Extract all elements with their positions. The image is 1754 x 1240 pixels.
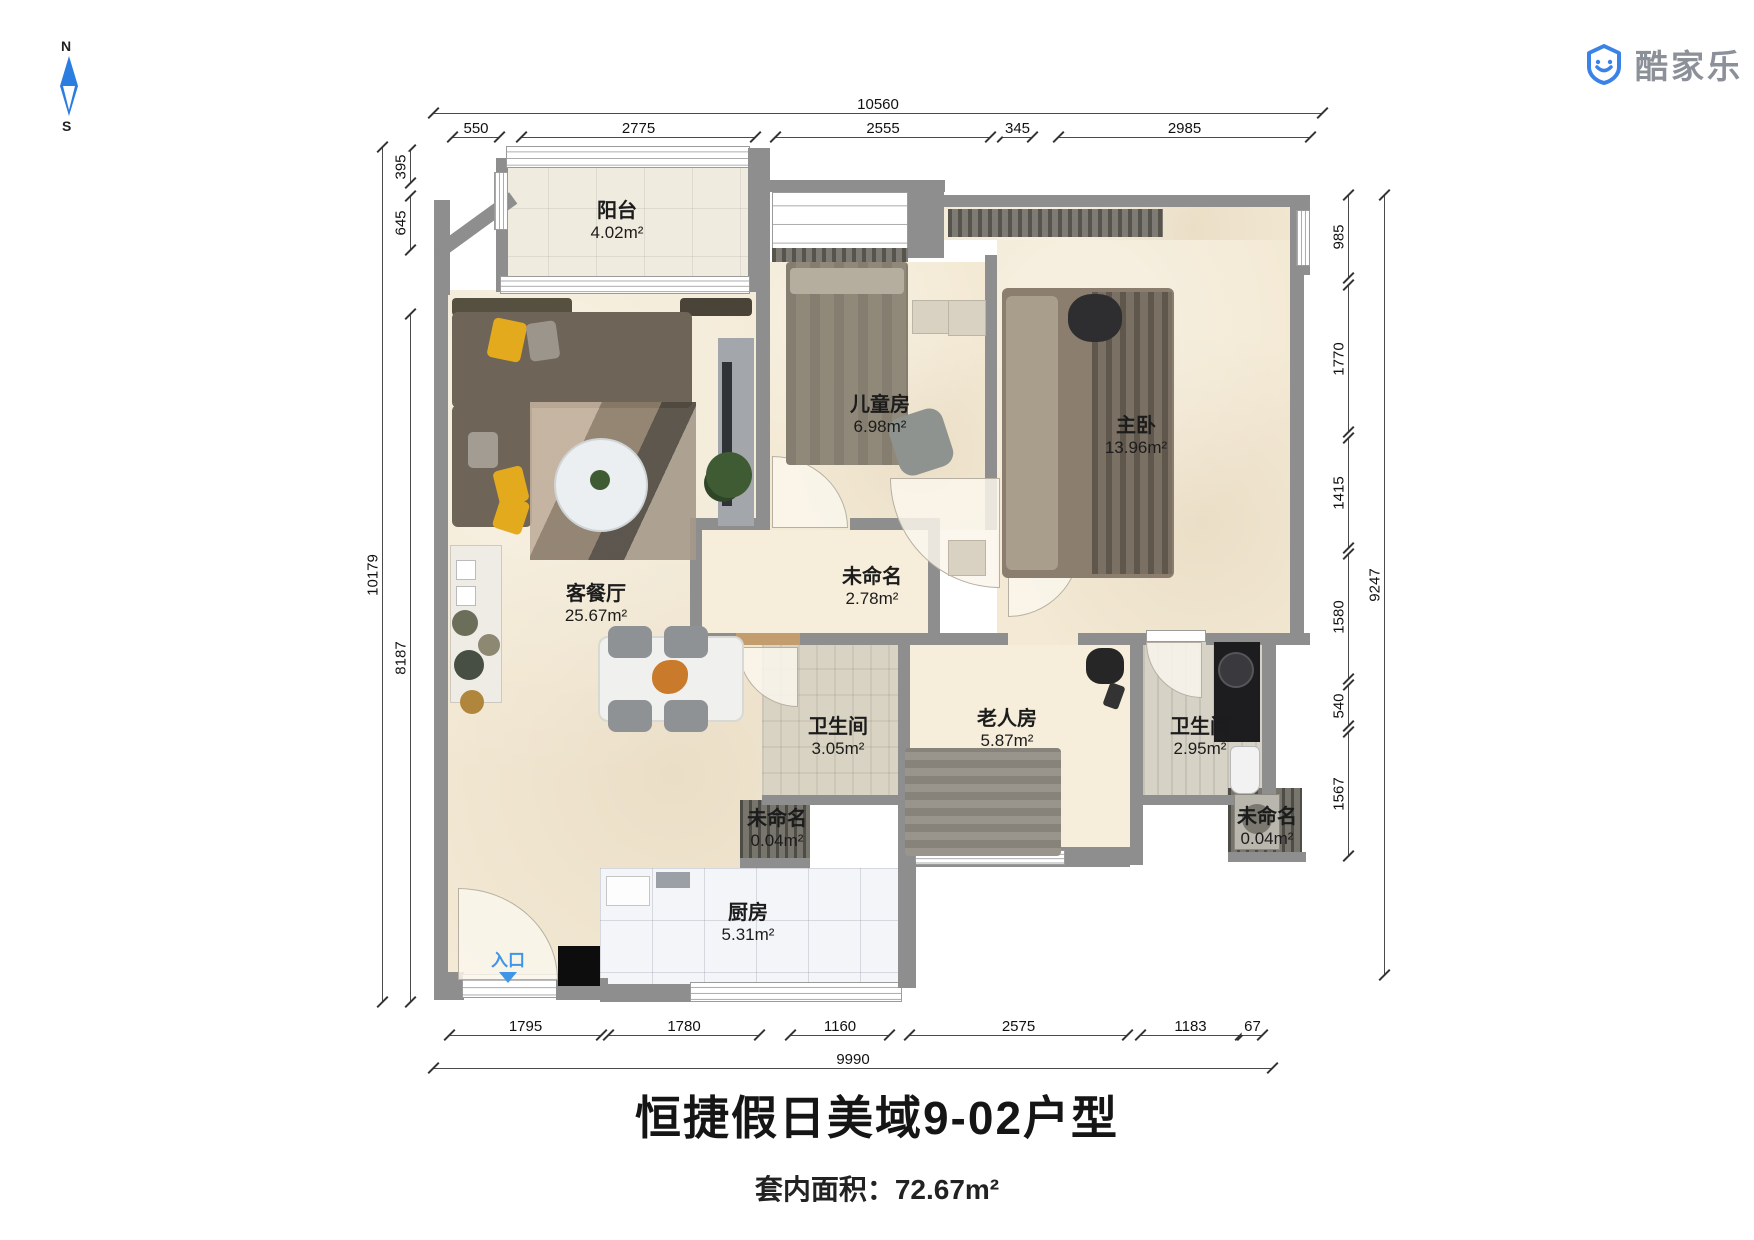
dim-bottom-seg-2575: 2575: [910, 1015, 1127, 1036]
sofa-chaise: [452, 312, 692, 408]
wall-left: [434, 290, 448, 982]
kids-curtain-band: [772, 248, 908, 262]
dim-bottom-seg-1780: 1780: [609, 1015, 759, 1036]
decor-pot-3: [454, 650, 484, 680]
plan-title: 恒捷假日美域9-02户型: [0, 1082, 1754, 1148]
floorplan-page: N S 酷家乐: [0, 0, 1754, 1240]
dim-top-seg-345: 345: [1003, 117, 1032, 138]
room-label-hallway-unnamed: 未命名 2.78m²: [842, 566, 902, 609]
dim-bottom-seg-67: 67: [1243, 1015, 1262, 1036]
decor-pot-4: [460, 690, 484, 714]
dim-bottom-total: 9990: [434, 1048, 1272, 1069]
room-label-bathroom2: 卫生间 2.95m²: [1170, 716, 1230, 759]
bathroom1-threshold: [736, 633, 800, 645]
dim-right-seg-540: 540: [1348, 685, 1369, 726]
kujiale-logo-text: 酷家乐: [1635, 40, 1743, 88]
room-label-kitchen: 厨房 5.31m²: [722, 902, 775, 945]
dining-chair-2: [664, 626, 708, 658]
sideboard-dish-1: [456, 560, 476, 580]
wall-bath1-bottom: [762, 795, 910, 805]
kids-bed-pillow: [790, 268, 904, 294]
decor-pot-1: [452, 610, 478, 636]
dim-left-seg-645: 645: [410, 196, 431, 250]
master-nightstand-2: [948, 540, 986, 576]
wall-master-top: [940, 195, 1310, 207]
master-right-window: [1296, 210, 1310, 266]
coffee-table-plant: [590, 470, 610, 490]
dim-top-seg-2775: 2775: [522, 117, 755, 138]
room-label-balcony: 阳台 4.02m²: [591, 200, 644, 243]
room-label-master-bedroom: 主卧 13.96m²: [1105, 415, 1167, 458]
wall-kids-master-gap: [908, 192, 944, 258]
wall-bathrow-b: [800, 633, 1008, 645]
dim-right-total: 9247: [1384, 195, 1405, 975]
bathroom2-toilet: [1230, 746, 1260, 794]
balcony-living-window: [500, 276, 750, 294]
dim-top-seg-550: 550: [453, 117, 499, 138]
master-beanbag: [1068, 294, 1122, 342]
room-label-elder-room: 老人房 5.87m²: [977, 708, 1037, 751]
hallway-floor: [702, 530, 940, 645]
plant-shelf-right: [680, 298, 752, 316]
balcony-top-window: [506, 146, 750, 168]
dim-bottom-seg-1160: 1160: [791, 1015, 889, 1036]
dim-left-seg-8187: 8187: [410, 314, 431, 1002]
dim-right-seg-1415: 1415: [1348, 438, 1369, 548]
dim-left-total: 10179: [382, 147, 403, 1002]
compass-needle-north: [60, 56, 78, 86]
wall-niche-left-bottom: [740, 858, 810, 868]
room-label-unnamed-left: 未命名 0.04m²: [747, 808, 807, 851]
kitchen-counter-item: [606, 876, 650, 906]
compass-south-label: S: [62, 118, 71, 134]
room-label-unnamed-right: 未命名 0.04m²: [1237, 806, 1297, 849]
master-nightstand-1: [948, 300, 986, 336]
entrance-label: 入口: [491, 946, 525, 971]
sideboard-dish-2: [456, 586, 476, 606]
wall-kitchen-bottom: [600, 984, 692, 1002]
dining-chair-1: [608, 626, 652, 658]
compass-needle-south-fill: [63, 86, 75, 110]
pillow-gray-1: [526, 320, 561, 362]
bathroom2-door-threshold: [1146, 630, 1206, 642]
kitchen-hood: [656, 872, 690, 888]
elder-bed: [905, 748, 1061, 856]
dim-bottom-seg-1183: 1183: [1141, 1015, 1240, 1036]
wall-niche-right-bottom: [1228, 852, 1306, 862]
dim-right-seg-1770: 1770: [1348, 285, 1369, 432]
dim-right-seg-1567: 1567: [1348, 732, 1369, 856]
balcony-left-window: [494, 172, 508, 230]
dim-top-seg-2555: 2555: [776, 117, 990, 138]
wall-bath2-right: [1262, 633, 1276, 800]
pillow-gray-2: [468, 432, 498, 468]
wall-kitchen-right: [898, 862, 916, 988]
wall-elder-bath2: [1130, 645, 1143, 865]
plan-area-subtitle: 套内面积：72.67m²: [0, 1168, 1754, 1208]
dining-chair-4: [664, 700, 708, 732]
dining-chair-3: [608, 700, 652, 732]
room-label-kids-room: 儿童房 6.98m²: [850, 394, 910, 437]
wall-living-kids: [756, 290, 770, 530]
compass-north-label: N: [61, 38, 71, 54]
master-curtain-band: [948, 209, 1163, 237]
dim-right-seg-985: 985: [1348, 195, 1369, 278]
wall-master-right: [1290, 270, 1304, 645]
kujiale-logo: 酷家乐: [1583, 40, 1743, 88]
wall-balcony-right: [748, 148, 770, 292]
room-label-living-dining: 客餐厅 25.67m²: [565, 583, 627, 626]
dim-top-total: 10560: [434, 93, 1322, 114]
dim-bottom-seg-1795: 1795: [450, 1015, 601, 1036]
wall-bathrow-c: [1078, 633, 1146, 645]
kitchen-fridge: [558, 946, 600, 986]
entrance-arrow-icon: [499, 972, 517, 983]
kujiale-shield-icon: [1583, 43, 1625, 85]
kitchen-window: [690, 982, 902, 1002]
decor-pot-2: [478, 634, 500, 656]
elder-desk-chair: [1086, 648, 1124, 684]
dim-left-seg-395: 395: [410, 150, 431, 183]
master-bed-pillows: [1006, 296, 1058, 570]
bathroom2-sink: [1218, 652, 1254, 688]
floor-plant: [706, 452, 752, 498]
kids-bay-window: [772, 192, 908, 250]
room-label-bathroom1: 卫生间 3.05m²: [808, 716, 868, 759]
wall-kids-bay-top: [762, 180, 945, 192]
dim-top-seg-2985: 2985: [1059, 117, 1310, 138]
